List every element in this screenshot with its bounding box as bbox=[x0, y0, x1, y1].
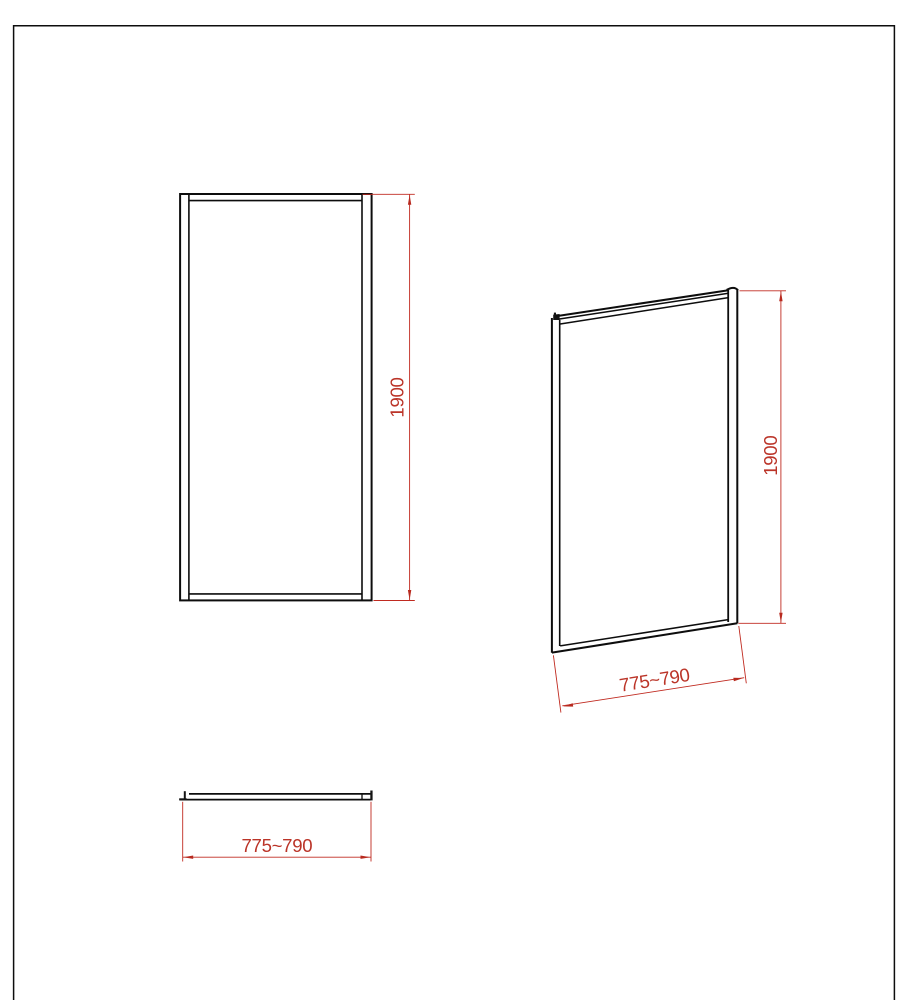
svg-text:775~790: 775~790 bbox=[241, 835, 312, 856]
svg-text:1900: 1900 bbox=[760, 436, 781, 476]
svg-text:1900: 1900 bbox=[386, 377, 407, 417]
